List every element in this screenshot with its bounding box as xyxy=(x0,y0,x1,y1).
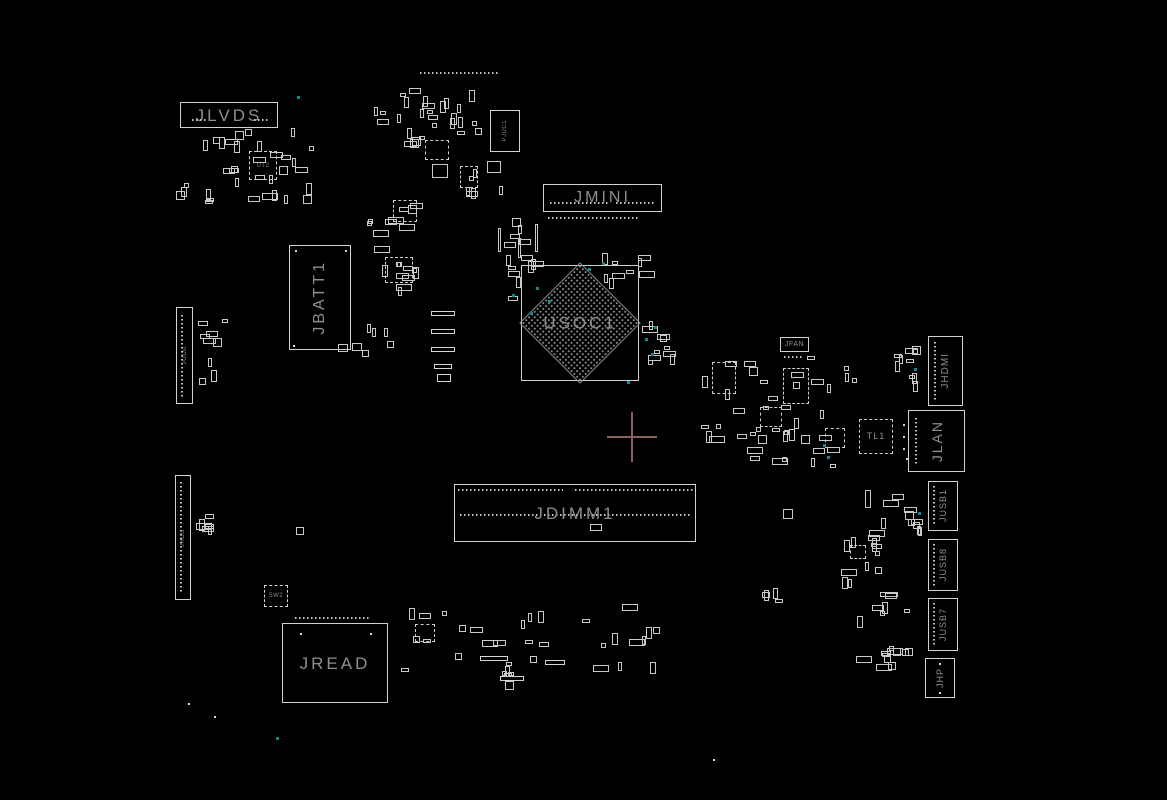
component-outline[interactable] xyxy=(367,324,371,333)
component-outline[interactable] xyxy=(401,668,409,672)
component-outline[interactable] xyxy=(457,104,461,113)
component-outline[interactable] xyxy=(764,590,769,601)
component-outline[interactable] xyxy=(881,518,886,529)
pin-row xyxy=(180,482,182,594)
capacitor-bar[interactable] xyxy=(431,347,455,352)
connector-jread-label: JREAD xyxy=(300,655,371,672)
connector-jhdd[interactable]: JHDD xyxy=(175,475,191,600)
connector-jread[interactable]: JREAD xyxy=(282,623,388,703)
component-outline[interactable] xyxy=(295,167,308,173)
chip-tl1-label: TL1 xyxy=(867,432,886,441)
connector-jusb1-label: JUSB1 xyxy=(939,489,948,522)
silk-dot xyxy=(370,633,372,635)
component-outline[interactable] xyxy=(367,221,372,226)
component-outline[interactable] xyxy=(744,361,756,367)
component-outline[interactable] xyxy=(612,261,618,265)
component-outline[interactable] xyxy=(508,266,516,270)
component-outline[interactable] xyxy=(912,346,921,355)
component-outline[interactable] xyxy=(255,175,265,180)
component-outline[interactable] xyxy=(582,619,590,623)
pin-row xyxy=(933,544,935,586)
chip-ut2-label: UT2 xyxy=(257,163,270,169)
component-outline[interactable] xyxy=(516,277,521,288)
component-outline[interactable] xyxy=(213,338,222,347)
switch-sw2[interactable]: SW2 xyxy=(264,585,288,607)
component-outline[interactable] xyxy=(827,447,840,453)
component-outline[interactable] xyxy=(650,662,656,674)
component-outline[interactable] xyxy=(373,230,389,237)
test-point-teal xyxy=(602,262,605,265)
component-outline[interactable] xyxy=(208,358,212,367)
component-outline[interactable] xyxy=(807,356,815,360)
test-point-teal xyxy=(651,353,654,356)
component-outline[interactable] xyxy=(487,161,501,173)
component-outline[interactable] xyxy=(352,343,362,351)
component-outline[interactable] xyxy=(793,382,800,389)
component-outline[interactable] xyxy=(660,335,667,342)
test-point-teal xyxy=(512,294,515,297)
component-outline[interactable] xyxy=(473,169,477,178)
connector-jusb7-label: JUSB7 xyxy=(939,608,948,641)
component-outline[interactable] xyxy=(781,405,791,410)
component-outline[interactable] xyxy=(338,344,348,352)
component-outline[interactable] xyxy=(199,378,206,385)
silk-dot xyxy=(300,633,302,635)
component-outline[interactable] xyxy=(466,187,470,196)
component-outline[interactable] xyxy=(409,608,415,620)
component-outline[interactable] xyxy=(270,152,283,158)
component-outline[interactable] xyxy=(856,656,872,663)
component-outline[interactable] xyxy=(296,527,304,535)
component-outline[interactable] xyxy=(222,319,228,323)
component-outline[interactable] xyxy=(235,131,244,140)
component-outline[interactable] xyxy=(845,373,849,382)
silk-dot xyxy=(939,692,941,694)
component-outline[interactable] xyxy=(530,656,537,663)
component-outline[interactable] xyxy=(612,633,618,645)
component-outline[interactable] xyxy=(848,579,852,588)
component-outline[interactable] xyxy=(906,359,914,363)
connector-jmini[interactable]: JMINI xyxy=(543,184,662,212)
component-outline[interactable] xyxy=(768,396,778,401)
test-point-teal xyxy=(548,300,551,303)
component-outline[interactable] xyxy=(841,569,857,576)
component-outline[interactable] xyxy=(506,255,511,266)
pin-row xyxy=(934,342,936,400)
chip-usoc1[interactable]: USOC1 xyxy=(521,265,639,381)
component-outline[interactable] xyxy=(455,653,462,660)
component-outline[interactable] xyxy=(772,428,780,432)
capacitor-bar[interactable] xyxy=(480,656,508,661)
silk-dot xyxy=(903,436,905,438)
component-outline[interactable] xyxy=(750,432,756,436)
component-outline[interactable] xyxy=(756,427,761,432)
connector-jdimm1[interactable]: JDIMM1 xyxy=(454,484,696,542)
component-outline[interactable] xyxy=(399,224,415,231)
component-outline[interactable] xyxy=(629,639,645,646)
test-point-teal xyxy=(588,268,591,271)
test-point-teal xyxy=(823,444,826,447)
capacitor-bar[interactable] xyxy=(431,311,455,316)
component-outline[interactable] xyxy=(794,418,799,429)
component-outline[interactable] xyxy=(498,228,501,252)
component-outline[interactable] xyxy=(830,464,836,468)
component-outline[interactable] xyxy=(912,373,917,384)
component-outline[interactable] xyxy=(199,519,205,531)
component-outline[interactable] xyxy=(706,431,712,443)
component-outline[interactable] xyxy=(409,88,421,94)
component-outline[interactable] xyxy=(601,643,606,648)
component-outline[interactable] xyxy=(506,662,512,666)
component-outline[interactable] xyxy=(760,380,768,384)
pin-row xyxy=(548,217,640,219)
pin-row xyxy=(784,356,804,358)
component-outline[interactable] xyxy=(819,435,832,441)
component-outline[interactable] xyxy=(789,429,795,441)
component-outline[interactable] xyxy=(783,509,793,519)
component-outline[interactable] xyxy=(876,664,892,671)
component-outline[interactable] xyxy=(844,366,849,371)
component-outline[interactable] xyxy=(772,458,788,465)
connector-jdimm1-label: JDIMM1 xyxy=(534,505,615,522)
component-outline[interactable] xyxy=(291,128,295,137)
component-outline[interactable] xyxy=(801,435,810,444)
component-outline[interactable] xyxy=(646,627,652,639)
capacitor-bar[interactable] xyxy=(437,374,451,382)
component-outline[interactable] xyxy=(737,434,747,439)
component-outline[interactable] xyxy=(372,328,376,337)
component-outline[interactable] xyxy=(908,519,915,526)
component-outline[interactable] xyxy=(362,350,369,357)
component-outline[interactable] xyxy=(279,166,288,175)
component-outline[interactable] xyxy=(763,406,769,410)
component-outline[interactable] xyxy=(432,123,437,128)
component-outline[interactable] xyxy=(783,431,788,442)
pin-row xyxy=(915,418,917,464)
component-outline[interactable] xyxy=(851,537,856,548)
component-outline[interactable] xyxy=(309,146,314,151)
component-outline[interactable] xyxy=(904,507,917,513)
pin-row xyxy=(933,486,935,526)
component-outline[interactable] xyxy=(493,640,506,646)
test-point-teal xyxy=(627,381,630,384)
component-outline[interactable] xyxy=(504,242,516,248)
test-point-teal xyxy=(914,368,917,371)
component-outline[interactable] xyxy=(176,191,185,200)
component-outline[interactable] xyxy=(865,562,869,571)
component-outline[interactable] xyxy=(499,186,503,195)
component-outline[interactable] xyxy=(396,284,412,291)
component-outline[interactable] xyxy=(702,376,708,388)
component-outline[interactable] xyxy=(902,649,909,656)
ic-outline[interactable] xyxy=(425,140,449,160)
component-outline[interactable] xyxy=(593,665,609,672)
connector-jhp-label: JHP xyxy=(936,668,945,688)
crosshair-vertical xyxy=(631,412,633,462)
component-outline[interactable] xyxy=(413,636,420,643)
component-outline[interactable] xyxy=(775,599,783,603)
component-outline[interactable] xyxy=(894,354,902,358)
component-outline[interactable] xyxy=(442,611,447,616)
component-outline[interactable] xyxy=(206,331,218,337)
component-outline[interactable] xyxy=(382,265,388,277)
pin-row xyxy=(575,489,693,491)
component-outline[interactable] xyxy=(396,273,409,279)
component-outline[interactable] xyxy=(622,604,638,611)
component-outline[interactable] xyxy=(716,424,721,429)
component-outline[interactable] xyxy=(538,611,544,623)
silk-dot xyxy=(293,345,295,347)
component-outline[interactable] xyxy=(618,662,622,671)
board-canvas[interactable]: JLVDS JMINI JBATT1 USOC1 JDIMM1 JREAD JH… xyxy=(0,0,1167,800)
component-outline[interactable] xyxy=(403,266,413,271)
component-outline[interactable] xyxy=(458,117,463,128)
component-outline[interactable] xyxy=(234,141,240,153)
component-outline[interactable] xyxy=(904,609,910,613)
test-point-teal xyxy=(536,287,539,290)
component-outline[interactable] xyxy=(384,328,388,337)
silk-dot xyxy=(214,716,216,718)
component-outline[interactable] xyxy=(590,524,602,531)
component-outline[interactable] xyxy=(396,262,401,267)
component-outline[interactable] xyxy=(664,346,670,350)
component-outline[interactable] xyxy=(469,90,475,102)
pin-row xyxy=(933,603,935,646)
component-outline[interactable] xyxy=(211,370,217,382)
component-outline[interactable] xyxy=(733,408,745,414)
component-outline[interactable] xyxy=(857,616,863,628)
component-outline[interactable] xyxy=(663,351,676,357)
component-outline[interactable] xyxy=(423,639,431,643)
component-outline[interactable] xyxy=(419,613,431,619)
component-outline[interactable] xyxy=(535,224,538,252)
component-outline[interactable] xyxy=(412,137,421,146)
component-outline[interactable] xyxy=(306,183,312,195)
component-outline[interactable] xyxy=(883,500,899,507)
component-outline[interactable] xyxy=(205,514,214,519)
component-outline[interactable] xyxy=(269,175,273,184)
chip-usoc1-label: USOC1 xyxy=(543,315,617,332)
component-outline[interactable] xyxy=(257,141,262,152)
component-outline[interactable] xyxy=(865,490,871,508)
test-point-teal xyxy=(918,512,921,515)
component-outline[interactable] xyxy=(791,372,804,378)
test-point-teal xyxy=(645,338,648,341)
component-outline[interactable] xyxy=(521,620,525,629)
component-outline[interactable] xyxy=(889,646,894,651)
test-point-teal xyxy=(276,737,279,740)
component-outline[interactable] xyxy=(844,540,850,552)
component-outline[interactable] xyxy=(701,425,709,429)
component-outline[interactable] xyxy=(875,567,882,574)
silk-dot xyxy=(906,458,908,460)
component-outline[interactable] xyxy=(648,355,661,361)
chip-tl1[interactable]: TL1 xyxy=(859,419,893,454)
component-outline[interactable] xyxy=(653,627,660,634)
component-outline[interactable] xyxy=(811,458,815,467)
component-outline[interactable] xyxy=(444,98,449,109)
component-outline[interactable] xyxy=(639,271,655,278)
capacitor-bar[interactable] xyxy=(431,329,455,334)
silk-dot xyxy=(713,759,715,761)
component-outline[interactable] xyxy=(253,157,266,163)
component-outline[interactable] xyxy=(397,114,401,123)
component-outline[interactable] xyxy=(420,109,424,118)
component-outline[interactable] xyxy=(725,361,737,367)
pin-row xyxy=(181,315,183,397)
test-point-teal xyxy=(530,312,533,315)
component-outline[interactable] xyxy=(528,261,534,273)
component-outline[interactable] xyxy=(235,178,239,187)
component-outline[interactable] xyxy=(811,379,824,385)
component-outline[interactable] xyxy=(428,115,438,120)
component-outline[interactable] xyxy=(750,456,760,461)
pin-row xyxy=(420,72,498,74)
component-outline[interactable] xyxy=(885,593,897,599)
silk-dot xyxy=(345,250,347,252)
component-outline[interactable] xyxy=(229,168,239,173)
component-outline[interactable] xyxy=(292,158,296,167)
capacitor-bar[interactable] xyxy=(434,364,452,369)
connector-jlvds[interactable]: JLVDS xyxy=(180,102,278,128)
component-outline[interactable] xyxy=(198,321,208,326)
connector-jlan-label: JLAN xyxy=(930,420,944,462)
component-outline[interactable] xyxy=(604,274,608,283)
component-outline[interactable] xyxy=(387,341,394,348)
connector-jfan-label: JFAN xyxy=(785,341,804,348)
connector-pjdc1-label: PJDC1 xyxy=(502,120,508,142)
component-outline[interactable] xyxy=(747,447,763,454)
component-outline[interactable] xyxy=(528,613,532,622)
silk-dot xyxy=(295,250,297,252)
switch-sw2-label: SW2 xyxy=(269,593,284,599)
component-outline[interactable] xyxy=(475,128,482,135)
component-outline[interactable] xyxy=(749,367,758,376)
pin-row xyxy=(458,489,563,491)
pin-row xyxy=(550,202,608,204)
component-outline[interactable] xyxy=(413,267,419,279)
component-outline[interactable] xyxy=(248,196,260,202)
component-outline[interactable] xyxy=(518,225,522,234)
silk-dot xyxy=(939,663,941,665)
component-outline[interactable] xyxy=(380,111,386,115)
test-point-teal xyxy=(654,326,657,329)
component-outline[interactable] xyxy=(638,255,651,261)
component-outline[interactable] xyxy=(284,195,288,204)
component-outline[interactable] xyxy=(303,195,312,204)
pin-row xyxy=(254,119,268,121)
component-outline[interactable] xyxy=(654,350,660,354)
silk-dot xyxy=(903,424,905,426)
component-outline[interactable] xyxy=(882,602,888,614)
test-point-teal xyxy=(297,96,300,99)
component-outline[interactable] xyxy=(184,183,189,188)
component-outline[interactable] xyxy=(471,188,476,199)
component-outline[interactable] xyxy=(388,217,404,224)
component-outline[interactable] xyxy=(377,119,389,125)
silk-dot xyxy=(188,703,190,705)
component-outline[interactable] xyxy=(539,642,549,647)
component-outline[interactable] xyxy=(208,526,212,535)
pin-row xyxy=(192,119,206,121)
connector-jhdmi-label: JHDMI xyxy=(941,353,951,389)
pin-row xyxy=(616,202,656,204)
component-outline[interactable] xyxy=(459,625,466,632)
component-outline[interactable] xyxy=(272,190,277,201)
component-outline[interactable] xyxy=(457,131,465,135)
component-outline[interactable] xyxy=(432,164,448,178)
connector-jusb8-label: JUSB8 xyxy=(939,548,948,581)
connector-pjdc1[interactable]: PJDC1 xyxy=(490,110,520,152)
component-outline[interactable] xyxy=(525,640,533,644)
component-outline[interactable] xyxy=(404,97,409,108)
component-outline[interactable] xyxy=(758,435,767,444)
silk-dot xyxy=(903,448,905,450)
capacitor-bar[interactable] xyxy=(545,660,565,665)
connector-jfan[interactable]: JFAN xyxy=(780,337,809,352)
component-outline[interactable] xyxy=(451,113,457,125)
component-outline[interactable] xyxy=(725,389,730,400)
component-outline[interactable] xyxy=(206,198,214,202)
component-outline[interactable] xyxy=(875,551,880,556)
component-outline[interactable] xyxy=(773,588,778,599)
component-outline[interactable] xyxy=(245,129,252,136)
component-outline[interactable] xyxy=(820,410,824,419)
component-outline[interactable] xyxy=(852,378,857,383)
component-outline[interactable] xyxy=(213,137,220,144)
component-outline[interactable] xyxy=(871,543,877,547)
component-outline[interactable] xyxy=(609,278,614,289)
component-outline[interactable] xyxy=(410,203,423,209)
component-outline[interactable] xyxy=(626,270,634,274)
component-outline[interactable] xyxy=(427,110,433,114)
connector-jbatt1-label: JBATT1 xyxy=(312,260,328,335)
component-outline[interactable] xyxy=(813,448,825,454)
component-outline[interactable] xyxy=(374,246,390,253)
component-outline[interactable] xyxy=(884,656,891,663)
ic-outline[interactable] xyxy=(760,407,782,427)
component-outline[interactable] xyxy=(374,107,378,116)
connector-jbatt1[interactable]: JBATT1 xyxy=(289,245,351,350)
component-outline[interactable] xyxy=(470,627,483,633)
component-outline[interactable] xyxy=(203,140,208,151)
component-outline[interactable] xyxy=(505,666,510,677)
component-outline[interactable] xyxy=(869,530,885,537)
pin-row xyxy=(295,617,371,619)
component-outline[interactable] xyxy=(505,681,514,690)
test-point-teal xyxy=(827,456,830,459)
component-outline[interactable] xyxy=(472,121,477,126)
connector-jodd[interactable]: JODD xyxy=(176,307,193,404)
component-outline[interactable] xyxy=(827,384,831,393)
component-outline[interactable] xyxy=(519,239,531,245)
